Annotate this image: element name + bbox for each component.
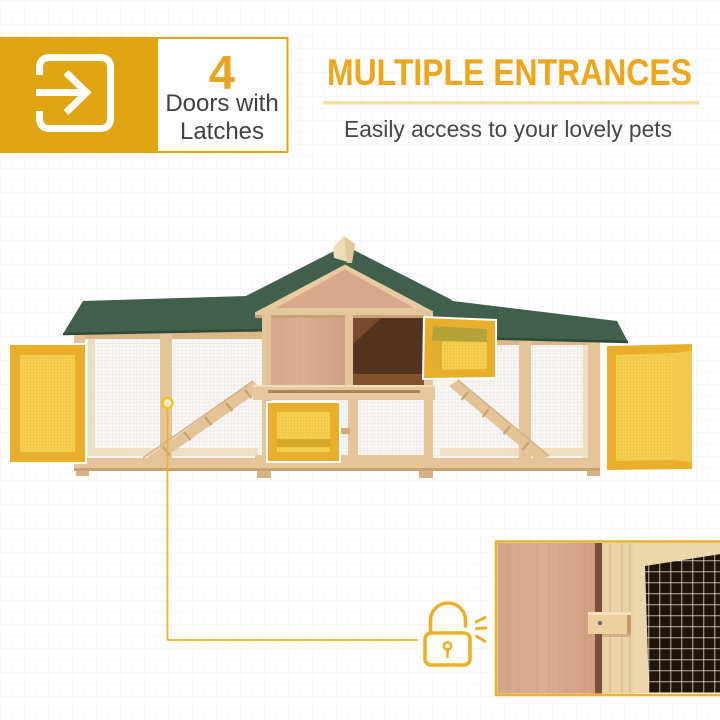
svg-text:Easily access to your lovely p: Easily access to your lovely pets bbox=[344, 116, 672, 142]
svg-text:MULTIPLE ENTRANCES: MULTIPLE ENTRANCES bbox=[327, 52, 692, 93]
svg-text:Doors with: Doors with bbox=[165, 90, 278, 117]
svg-text:Latches: Latches bbox=[180, 118, 264, 145]
